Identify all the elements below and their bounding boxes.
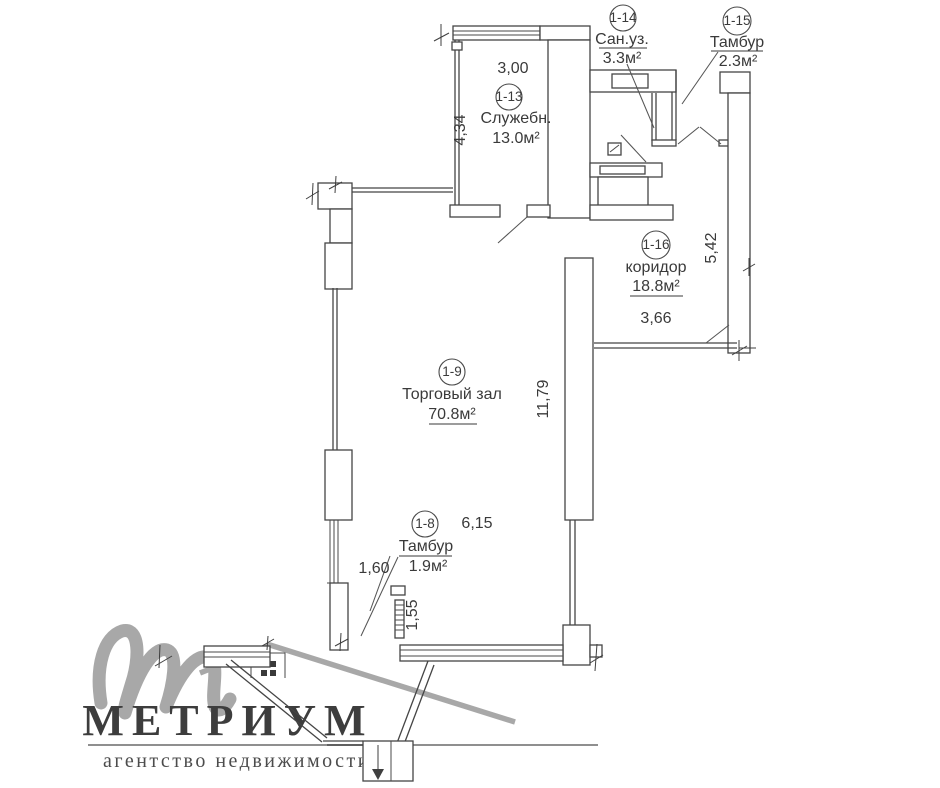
dim-entry-window: 1,55: [404, 599, 421, 630]
room-1-15-number: 1-15: [723, 13, 750, 28]
logo-tagline: агентство недвижимости: [103, 750, 371, 772]
room-label-1-9: 1-9 Торговый зал 70.8м²: [402, 359, 502, 424]
room-1-16-name: коридор: [625, 259, 686, 276]
room-1-8-number: 1-8: [415, 516, 435, 531]
room-label-1-15: 1-15 Тамбур 2.3м²: [710, 7, 764, 70]
room-1-15-name: Тамбур: [710, 34, 764, 51]
room-1-16-area: 18.8м²: [632, 278, 680, 295]
room-1-14-name: Сан.уз.: [595, 31, 649, 48]
room-1-14-area: 3.3м²: [603, 50, 642, 67]
logo-brand-text: МЕТРИУМ: [82, 696, 373, 745]
room-1-9-number: 1-9: [442, 364, 462, 379]
room-label-1-13: 1-13 Служебн. 13.0м²: [481, 84, 552, 147]
floor-plan-page: МЕТРИУМ агентство недвижимости: [0, 0, 940, 788]
dim-hall-width: 6,15: [461, 515, 492, 532]
floor-plan-svg: МЕТРИУМ агентство недвижимости: [0, 0, 940, 788]
room-label-1-16: 1-16 коридор 18.8м²: [625, 231, 686, 296]
dim-corridor-width: 3,66: [640, 310, 671, 327]
room-1-13-name: Служебн.: [481, 110, 552, 127]
room-1-14-number: 1-14: [609, 10, 637, 25]
room-1-8-name: Тамбур: [399, 538, 453, 555]
room-1-13-number: 1-13: [495, 89, 522, 104]
walls-layer: [204, 26, 750, 781]
dim-hall-height: 11,79: [535, 379, 552, 418]
room-1-15-area: 2.3м²: [719, 53, 758, 70]
room-label-1-8: 1-8 Тамбур 1.9м²: [399, 511, 453, 575]
room-1-13-area: 13.0м²: [492, 130, 540, 147]
dim-left-window: 1,60: [358, 560, 389, 577]
room-1-16-number: 1-16: [642, 237, 669, 252]
room-1-8-area: 1.9м²: [409, 558, 448, 575]
dim-top-width: 3,00: [497, 60, 528, 77]
room-1-9-area: 70.8м²: [428, 406, 476, 423]
dim-right-height: 5,42: [703, 232, 720, 263]
room-label-1-14: 1-14 Сан.уз. 3.3м²: [595, 5, 649, 67]
dim-left-height: 4,34: [452, 114, 469, 145]
room-1-9-name: Торговый зал: [402, 386, 502, 403]
